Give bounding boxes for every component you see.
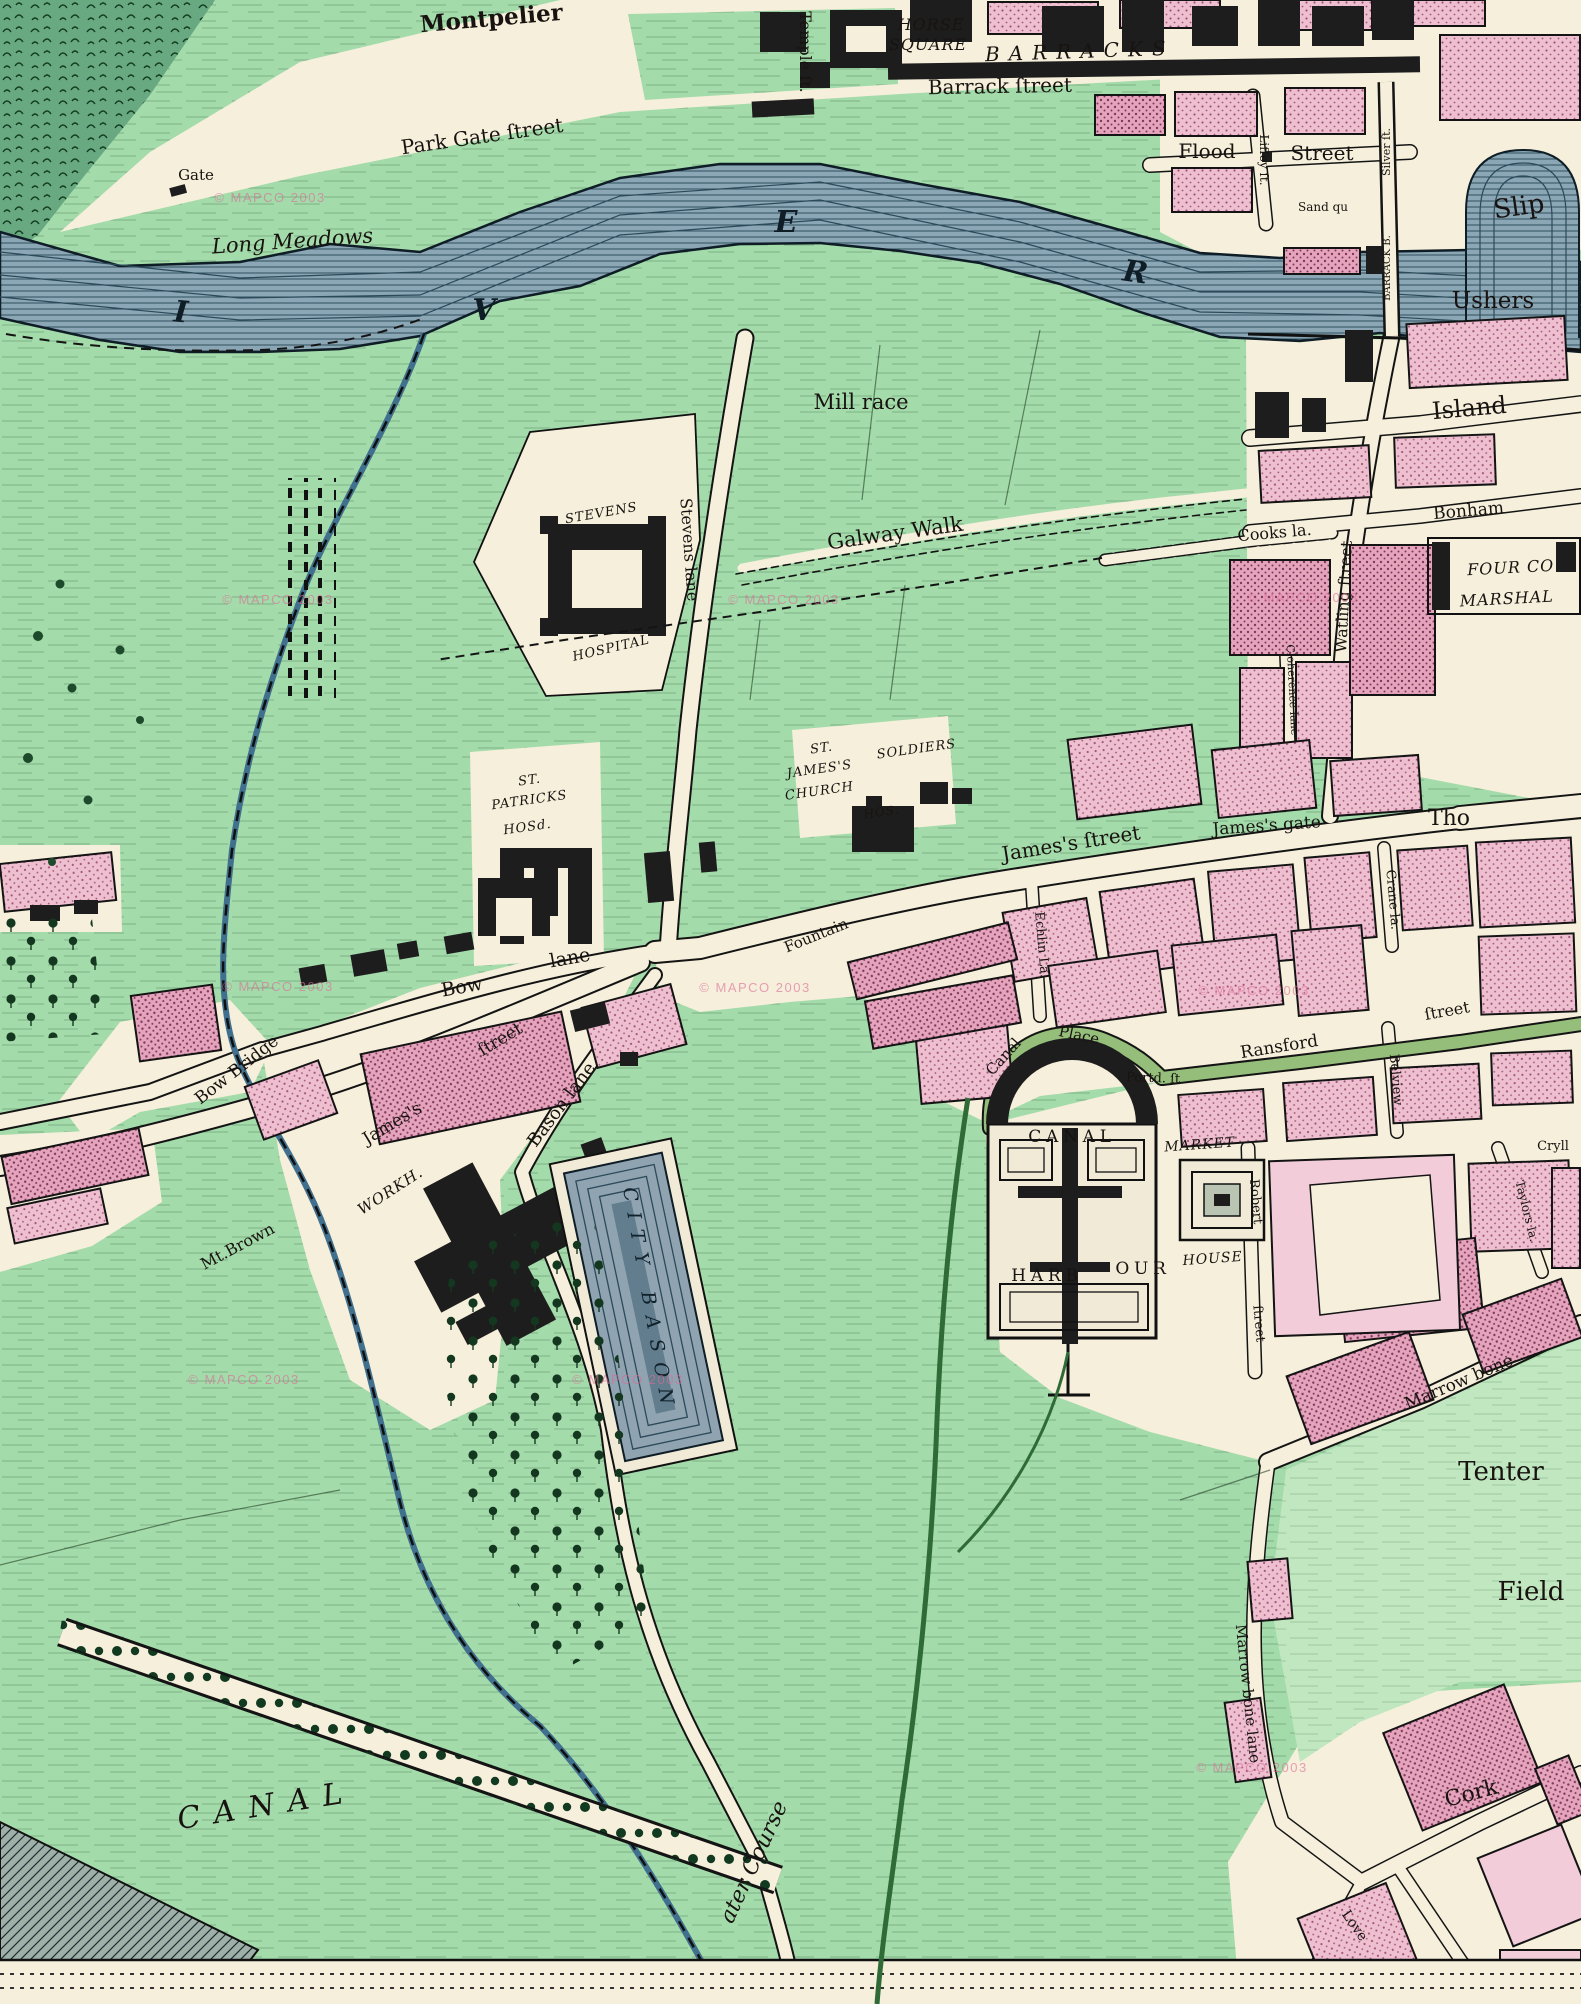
map-label: BARRACK B. — [1382, 235, 1393, 301]
watermark: © MAPCO 2003 — [188, 1372, 299, 1387]
map-label: HORSE — [897, 15, 965, 34]
watermark: © MAPCO 2003 — [572, 1372, 683, 1387]
map-label: OUR — [1115, 1259, 1170, 1279]
map-label: Cryll — [1537, 1139, 1569, 1154]
map-label: HARB — [1011, 1266, 1082, 1286]
map-label: Portd. ſt — [1126, 1070, 1181, 1087]
map-label: Barrack ſtreet — [928, 73, 1072, 100]
map-canvas: MontpelierTemple ſt.HORSESQUAREBARRACKSB… — [0, 0, 1581, 2004]
map-label: ST. — [517, 772, 542, 790]
map-label: ST. — [809, 740, 834, 758]
watermark: © MAPCO 2003 — [1196, 1760, 1307, 1775]
map-label: Street — [1290, 141, 1353, 165]
bottom-road-band — [0, 1960, 1581, 2004]
map-label: R — [1120, 253, 1151, 291]
watermark: © MAPCO 2003 — [699, 980, 810, 995]
map-label: Ushers — [1452, 288, 1534, 314]
watermark: © MAPCO 2003 — [222, 592, 333, 607]
map-label: CANAL — [1028, 1127, 1116, 1147]
map-label: Tho — [1428, 806, 1470, 831]
map-label: Silver ſt. — [1380, 128, 1393, 176]
watermark: © MAPCO 2003 — [728, 592, 839, 607]
watermark: © MAPCO 2003 — [214, 190, 325, 205]
map-label: SQUARE — [889, 35, 967, 54]
map-label: Sand qu — [1298, 200, 1348, 214]
watermark: © MAPCO 2003 — [222, 979, 333, 994]
map-label: Tenter — [1458, 1457, 1544, 1487]
watermark: © MAPCO 2003 — [1198, 983, 1309, 998]
map-label: Temple ſt. — [796, 11, 815, 92]
map-label: V — [472, 293, 498, 328]
tree-avenue-ticks — [282, 478, 336, 702]
map-label: Flood — [1178, 139, 1235, 163]
map-label: Liffey ſt. — [1257, 134, 1271, 185]
map-label: Mill race — [813, 390, 908, 414]
map-label: E — [774, 205, 799, 240]
watermark: © MAPCO 2003 — [1247, 590, 1358, 605]
map-label: Gate — [178, 166, 214, 184]
antique-map: MontpelierTemple ſt.HORSESQUAREBARRACKSB… — [0, 0, 1581, 2004]
map-label: Field — [1498, 1577, 1565, 1607]
stevens-hospital — [540, 516, 666, 636]
